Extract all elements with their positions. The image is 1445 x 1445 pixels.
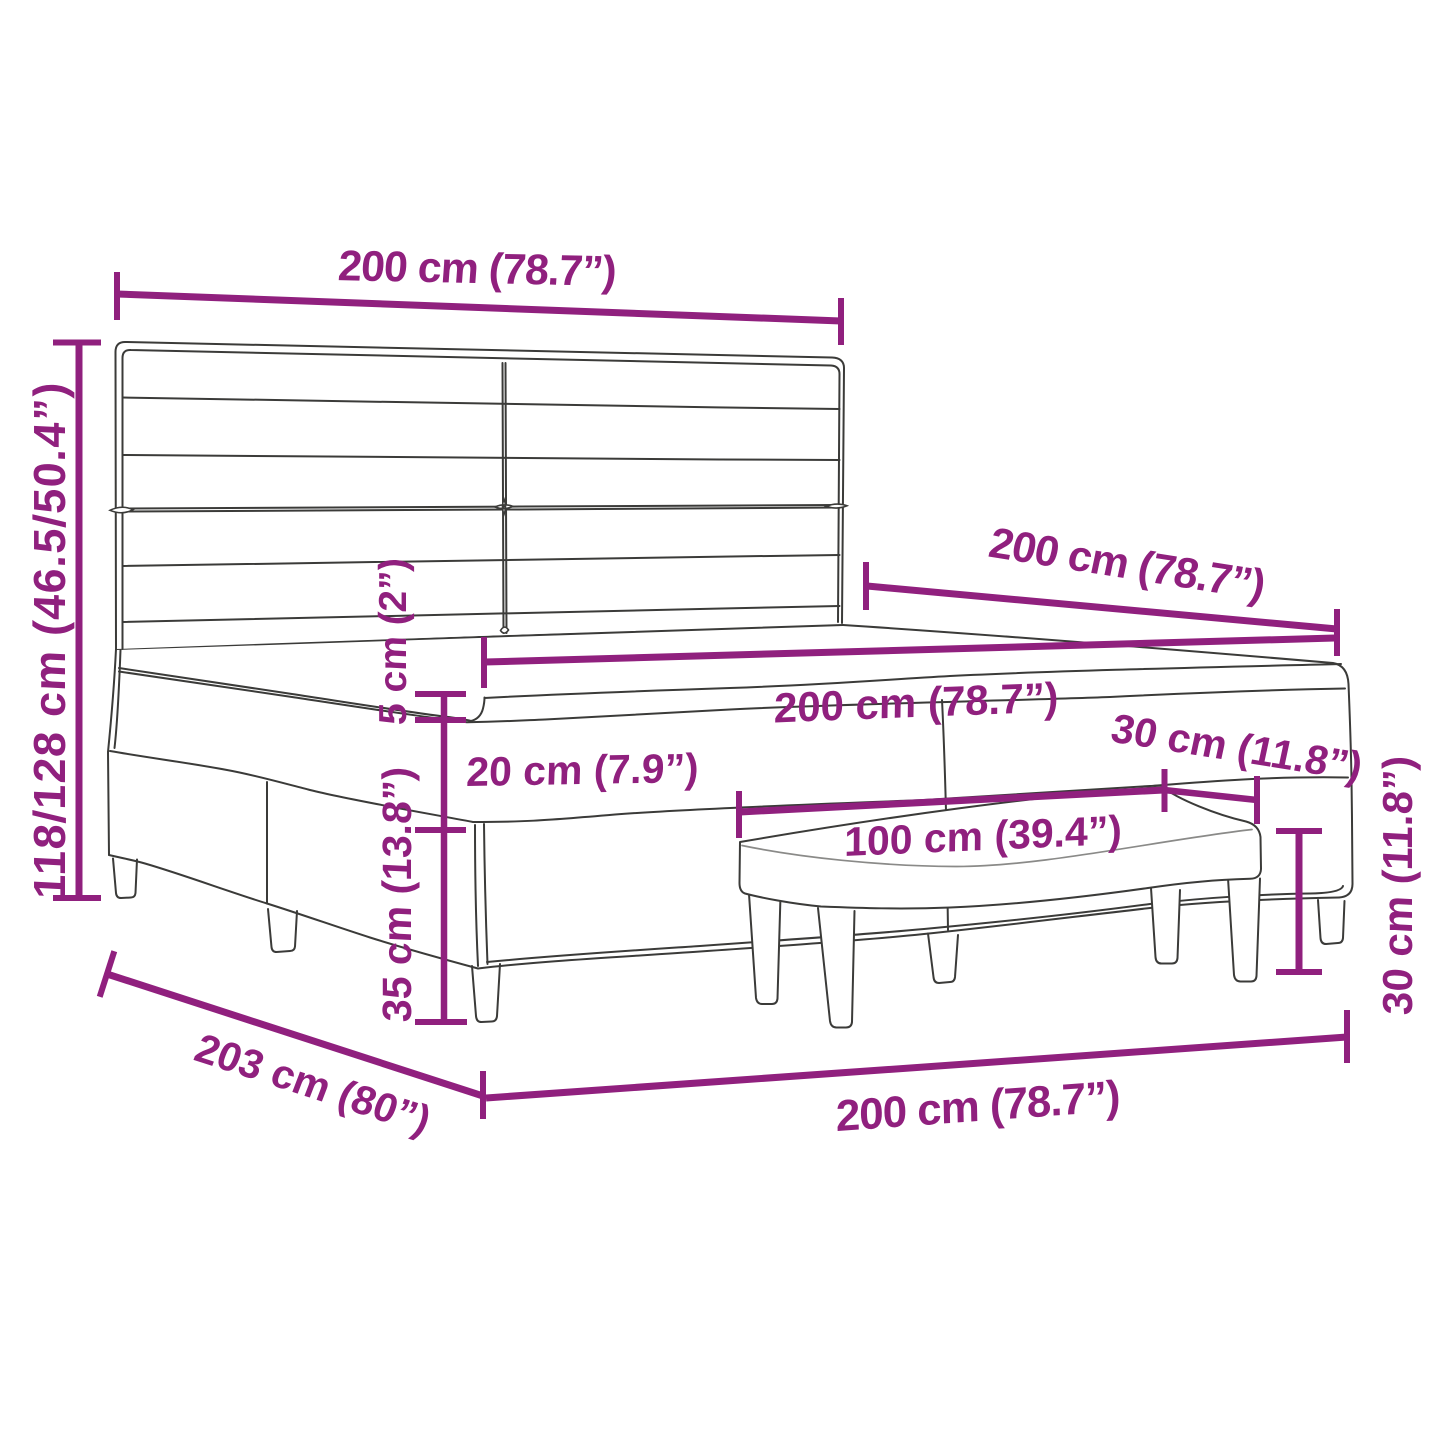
svg-text:30 cm (11.8”): 30 cm (11.8”) [1374,754,1421,1016]
svg-text:35 cm (13.8”): 35 cm (13.8”) [374,765,420,1023]
svg-text:118/128 cm (46.5/50.4”): 118/128 cm (46.5/50.4”) [24,380,75,900]
svg-text:200 cm (78.7”): 200 cm (78.7”) [337,242,618,296]
svg-text:20 cm (7.9”): 20 cm (7.9”) [466,745,700,795]
svg-text:5 cm (2”): 5 cm (2”) [372,557,415,726]
